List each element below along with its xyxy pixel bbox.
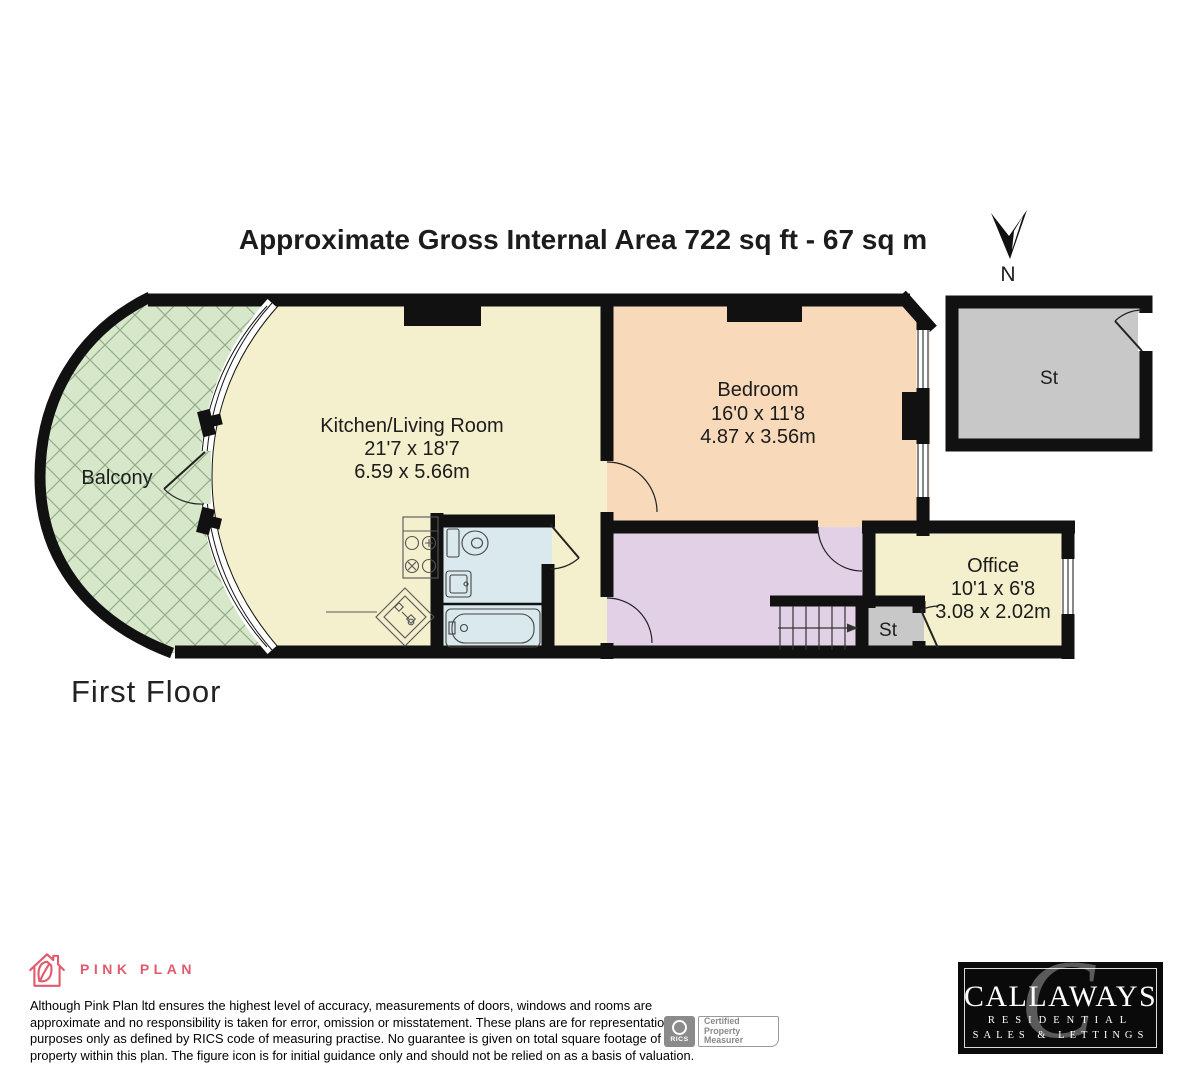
disclaimer-text: Although Pink Plan ltd ensures the highe… xyxy=(30,998,694,1064)
bedroom-dims-imperial: 16'0 x 11'8 xyxy=(711,403,805,425)
balcony-label: Balcony xyxy=(81,467,152,489)
pink-plan-logo: PINK PLAN xyxy=(26,948,196,990)
storage-room-label: St xyxy=(879,620,898,641)
rics-lion-icon xyxy=(672,1020,687,1035)
floorplan-page: Approximate Gross Internal Area 722 sq f… xyxy=(0,0,1191,1080)
north-label: N xyxy=(1000,263,1015,286)
kitchen-living-room-dims-imperial: 21'7 x 18'7 xyxy=(364,438,460,460)
bedroom-dims-metric: 4.87 x 3.56m xyxy=(700,426,816,448)
bedroom-window-top xyxy=(917,330,930,388)
bathroom-area xyxy=(437,517,552,650)
callaways-name: CALLAWAYS xyxy=(958,980,1163,1014)
disclaimer-line: approximate and no responsibility is tak… xyxy=(30,1015,694,1032)
office-label: Office xyxy=(967,555,1019,577)
north-arrow-icon xyxy=(991,210,1027,259)
disclaimer-line: Although Pink Plan ltd ensures the highe… xyxy=(30,998,694,1015)
rics-logo-icon: RICS xyxy=(664,1016,695,1047)
callaways-tagline-sales: SALES & LETTINGS xyxy=(958,1030,1163,1041)
disclaimer-line: property within this plan. The figure ic… xyxy=(30,1048,694,1065)
disclaimer-line: purposes only as defined by RICS code of… xyxy=(30,1031,694,1048)
floorplan-drawing: Approximate Gross Internal Area 722 sq f… xyxy=(0,0,1191,1080)
callaways-tagline-residential: RESIDENTIAL xyxy=(958,1015,1163,1026)
office-dims-metric: 3.08 x 2.02m xyxy=(935,601,1051,623)
rics-logo-text: RICS xyxy=(670,1036,688,1043)
rics-cert-line: Measurer xyxy=(704,1036,778,1046)
office-dims-imperial: 10'1 x 6'8 xyxy=(951,578,1035,600)
bedroom-label: Bedroom xyxy=(717,379,798,401)
floor-name-label: First Floor xyxy=(71,674,222,709)
rics-badge: RICS Certified Property Measurer xyxy=(664,1016,779,1047)
pink-plan-brand-text: PINK PLAN xyxy=(80,961,196,977)
rics-certification-label: Certified Property Measurer xyxy=(698,1016,779,1047)
external-storage-room-label: St xyxy=(1040,368,1059,389)
callaways-logo: C CALLAWAYS RESIDENTIAL SALES & LETTINGS xyxy=(958,962,1163,1054)
hallway-area xyxy=(607,527,870,652)
plan-title: Approximate Gross Internal Area 722 sq f… xyxy=(239,224,927,255)
kitchen-living-room-dims-metric: 6.59 x 5.66m xyxy=(354,461,470,483)
kitchen-living-room-label: Kitchen/Living Room xyxy=(320,415,503,437)
office-window xyxy=(1062,559,1075,614)
bedroom-window-bottom xyxy=(917,444,930,497)
house-icon xyxy=(26,948,68,990)
